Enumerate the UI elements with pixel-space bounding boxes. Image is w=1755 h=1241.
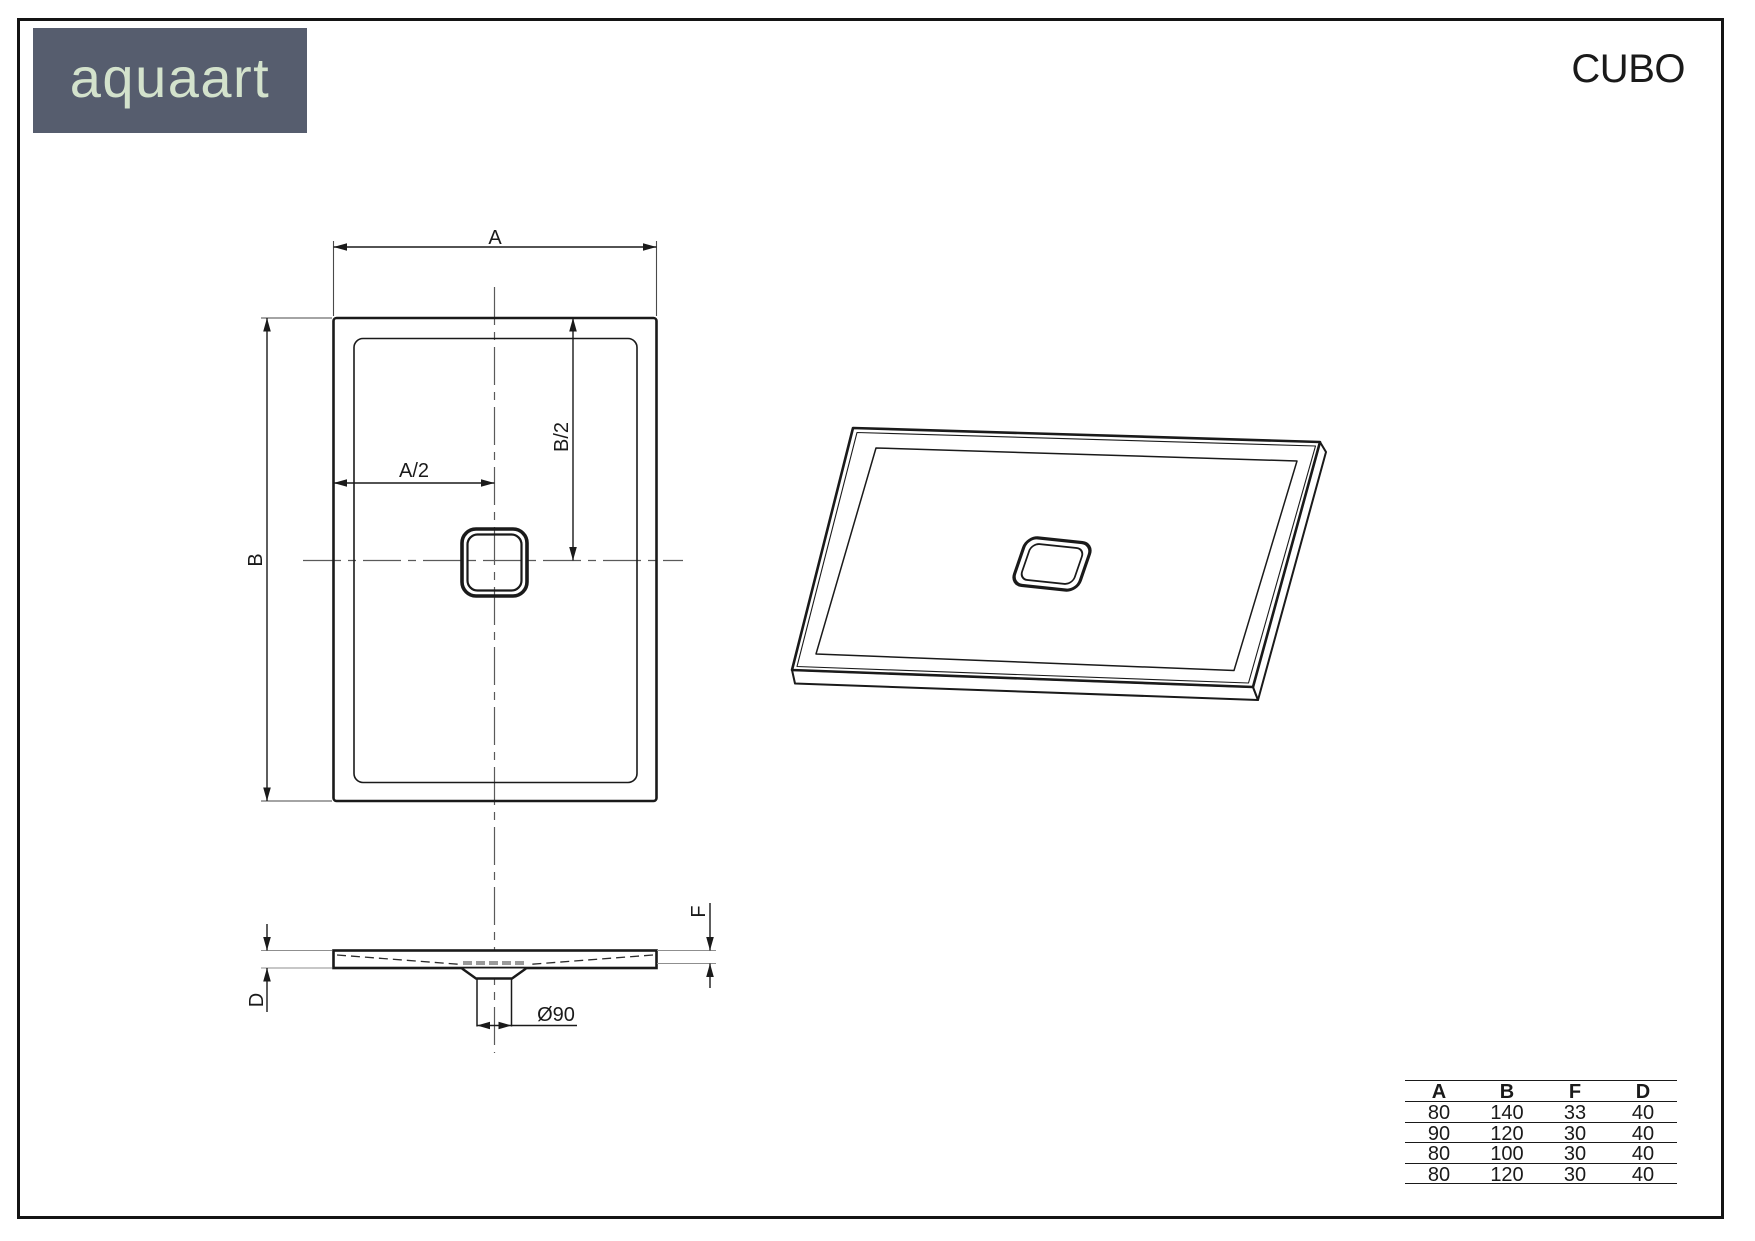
- table-cell: 80: [1405, 1102, 1473, 1123]
- table-cell: 40: [1609, 1143, 1677, 1164]
- table-cell: 30: [1541, 1164, 1609, 1185]
- arrowhead: [706, 937, 714, 951]
- table-cell: 40: [1609, 1123, 1677, 1144]
- spec-table-row: 80 100 30 40: [1405, 1143, 1677, 1164]
- table-cell: 30: [1541, 1143, 1609, 1164]
- arrowhead: [263, 937, 271, 951]
- table-cell: 40: [1609, 1164, 1677, 1185]
- table-cell: 90: [1405, 1123, 1473, 1144]
- table-cell: 120: [1473, 1164, 1541, 1185]
- table-cell: 80: [1405, 1143, 1473, 1164]
- table-cell: 120: [1473, 1123, 1541, 1144]
- dim-label-drain-diameter: Ø90: [537, 1004, 575, 1026]
- arrowhead: [263, 318, 271, 332]
- column-header: F: [1541, 1081, 1609, 1102]
- arrowhead: [263, 788, 271, 802]
- table-cell: 100: [1473, 1143, 1541, 1164]
- dim-label-a: A: [488, 227, 502, 249]
- arrowhead: [334, 479, 348, 487]
- spec-table-row: 90 120 30 40: [1405, 1123, 1677, 1144]
- dimension-drain-diameter: Ø90: [477, 1004, 577, 1029]
- drain-3d: [1011, 537, 1093, 591]
- dimension-b-half: B/2: [551, 318, 577, 561]
- table-cell: 40: [1609, 1102, 1677, 1123]
- dim-label-b-half: B/2: [551, 422, 573, 452]
- column-header: D: [1609, 1081, 1677, 1102]
- table-cell: 80: [1405, 1164, 1473, 1185]
- dim-label-b: B: [245, 553, 267, 566]
- drawing-sheet: aquaart CUBO A: [0, 0, 1755, 1241]
- table-cell: 140: [1473, 1102, 1541, 1123]
- dim-label-a-half: A/2: [399, 460, 429, 482]
- section-view: D F Ø90: [246, 903, 716, 1029]
- arrowhead: [643, 243, 657, 251]
- technical-drawing: A B A/2 B/2: [0, 0, 1755, 1241]
- dimension-f: F: [657, 903, 716, 988]
- dimension-a-half: A/2: [334, 460, 495, 487]
- arrowhead: [499, 1022, 512, 1030]
- arrowhead: [263, 968, 271, 982]
- arrowhead: [481, 479, 495, 487]
- arrowhead: [706, 964, 714, 978]
- spec-table: A B F D 80 140 33 40 90 120 30 40 80 100…: [1405, 1080, 1677, 1184]
- spec-table-row: 80 120 30 40: [1405, 1164, 1677, 1185]
- dim-label-d: D: [246, 993, 268, 1007]
- arrowhead: [569, 547, 577, 561]
- column-header: B: [1473, 1081, 1541, 1102]
- dimension-b: B: [245, 318, 332, 801]
- table-cell: 30: [1541, 1123, 1609, 1144]
- perspective-view: [792, 428, 1326, 700]
- spec-table-row: 80 140 33 40: [1405, 1102, 1677, 1123]
- column-header: A: [1405, 1081, 1473, 1102]
- spec-table-header-row: A B F D: [1405, 1081, 1677, 1102]
- table-cell: 33: [1541, 1102, 1609, 1123]
- plan-view: A B A/2 B/2: [245, 227, 683, 1053]
- tray-profile: [334, 951, 657, 969]
- drain-boss: [462, 969, 526, 979]
- dimension-d: D: [246, 924, 332, 1012]
- arrowhead: [334, 243, 348, 251]
- arrowhead: [569, 318, 577, 332]
- arrowhead: [477, 1022, 490, 1030]
- dim-label-f: F: [688, 905, 710, 917]
